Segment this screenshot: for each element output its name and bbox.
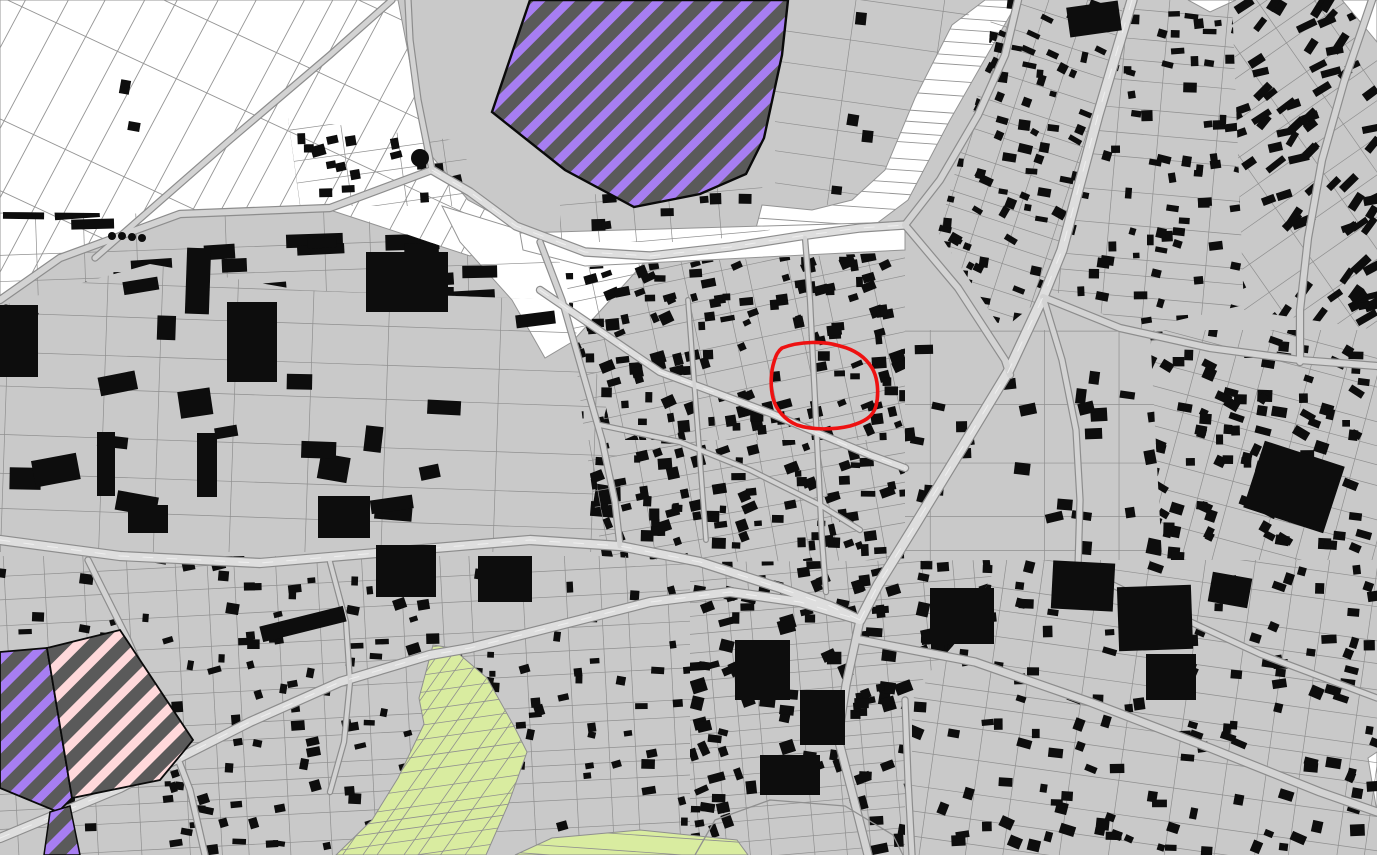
building	[861, 130, 873, 143]
building	[85, 823, 97, 831]
landmark-building	[478, 556, 532, 602]
building	[704, 312, 715, 322]
building	[621, 400, 629, 408]
landmark-building	[128, 505, 168, 533]
building	[1125, 507, 1136, 519]
building	[1165, 845, 1177, 851]
building	[1278, 341, 1289, 352]
building	[937, 562, 949, 572]
building	[994, 718, 1003, 729]
building	[635, 703, 648, 709]
landmark-building	[376, 545, 436, 597]
building	[1230, 204, 1241, 212]
landmark-building	[1146, 654, 1196, 700]
building	[875, 335, 882, 345]
building	[634, 455, 640, 462]
building	[725, 414, 737, 427]
building	[420, 192, 429, 202]
building	[529, 712, 542, 718]
building	[861, 491, 875, 497]
building	[1299, 393, 1308, 403]
building	[553, 631, 561, 642]
building	[287, 374, 313, 390]
building	[462, 265, 497, 278]
building	[364, 720, 375, 726]
building	[1134, 291, 1148, 299]
landmark-building	[1051, 560, 1115, 611]
building	[566, 582, 573, 593]
building	[1203, 29, 1217, 35]
building	[307, 577, 315, 583]
building	[590, 658, 600, 664]
building	[856, 277, 863, 287]
building	[739, 297, 753, 306]
building	[851, 462, 861, 468]
building	[246, 631, 255, 640]
building	[1275, 668, 1286, 677]
building	[218, 654, 224, 663]
building	[233, 738, 243, 746]
building	[677, 420, 690, 433]
building	[1208, 241, 1223, 251]
building	[222, 258, 248, 273]
building	[757, 425, 767, 435]
building	[797, 477, 807, 486]
building	[1133, 697, 1146, 710]
building	[1230, 670, 1242, 680]
building	[827, 652, 842, 665]
building	[641, 759, 655, 769]
building	[956, 421, 967, 432]
building	[915, 345, 934, 355]
building	[1256, 405, 1267, 416]
building	[708, 417, 715, 426]
building	[982, 822, 992, 832]
building	[601, 221, 611, 230]
building	[854, 698, 869, 708]
building	[18, 629, 32, 635]
building	[654, 275, 665, 282]
building	[1351, 787, 1363, 799]
building	[157, 315, 176, 340]
building	[1014, 462, 1031, 476]
building	[566, 273, 574, 279]
landmark-building	[735, 640, 790, 700]
building	[230, 801, 242, 808]
building	[885, 386, 898, 395]
building	[681, 817, 688, 825]
building	[797, 567, 810, 578]
building	[1106, 832, 1122, 840]
cadastral-map-canvas[interactable]	[0, 0, 1377, 855]
landmark-building	[97, 432, 115, 496]
building	[1018, 599, 1033, 609]
building	[1043, 626, 1053, 638]
building	[1024, 204, 1032, 212]
building	[601, 504, 609, 510]
building	[1348, 429, 1358, 441]
building	[1147, 791, 1158, 803]
building	[489, 671, 495, 677]
building	[874, 547, 887, 554]
building	[587, 722, 596, 732]
building	[781, 708, 790, 715]
building	[370, 653, 383, 660]
building	[583, 772, 591, 779]
building	[700, 196, 709, 204]
building	[1216, 434, 1223, 444]
building	[645, 392, 652, 403]
building	[1196, 501, 1208, 510]
building	[351, 576, 358, 585]
building	[247, 639, 259, 649]
building	[1306, 648, 1316, 656]
building	[691, 806, 700, 813]
building	[1199, 413, 1212, 424]
building	[732, 542, 741, 549]
landmark-building	[318, 496, 370, 538]
building	[754, 520, 762, 526]
building	[1342, 420, 1350, 427]
landmark-building	[1117, 585, 1193, 652]
landmark-building	[930, 588, 994, 644]
building	[638, 419, 647, 426]
building	[586, 353, 595, 362]
building	[1203, 120, 1212, 128]
building	[712, 538, 726, 549]
building	[649, 508, 659, 520]
building	[1333, 531, 1346, 541]
building	[1147, 235, 1154, 246]
building	[350, 169, 361, 180]
building	[731, 473, 745, 480]
building	[1015, 582, 1024, 590]
building	[32, 612, 44, 622]
building	[861, 544, 869, 556]
building	[1173, 357, 1185, 366]
building	[1051, 799, 1063, 806]
building	[1105, 629, 1115, 636]
building	[297, 133, 305, 144]
landmark-building	[197, 433, 217, 497]
building	[1365, 726, 1373, 735]
building	[487, 652, 494, 658]
building	[872, 606, 889, 614]
building	[914, 702, 927, 713]
building	[344, 786, 355, 796]
tank-circle	[118, 232, 126, 240]
building	[1171, 48, 1185, 55]
building	[921, 631, 931, 645]
building	[1171, 30, 1180, 38]
building	[723, 293, 731, 300]
landmark-building	[0, 305, 38, 377]
building	[745, 780, 757, 794]
building	[740, 603, 754, 611]
building	[1075, 388, 1087, 404]
building	[218, 570, 229, 581]
building	[1047, 124, 1059, 132]
building	[573, 668, 582, 677]
building	[673, 699, 683, 707]
building	[1183, 82, 1197, 92]
building	[1350, 824, 1365, 836]
building	[1141, 110, 1152, 121]
building	[1027, 667, 1039, 675]
building	[981, 719, 994, 726]
tank-circle	[138, 234, 146, 242]
tank-circle	[128, 233, 136, 241]
building	[808, 540, 815, 550]
building	[319, 188, 332, 197]
building	[417, 599, 430, 611]
building	[516, 722, 526, 729]
building	[323, 842, 332, 850]
building	[1040, 784, 1048, 793]
building	[1168, 11, 1180, 17]
building	[1196, 164, 1204, 175]
landmark-building	[227, 302, 277, 382]
landmark-building	[800, 690, 845, 745]
building	[1077, 286, 1084, 296]
building	[1222, 455, 1233, 464]
building	[616, 676, 626, 686]
building	[1214, 603, 1223, 611]
building	[1039, 142, 1050, 153]
building	[645, 295, 656, 302]
building	[605, 318, 620, 331]
building	[363, 425, 383, 453]
building	[699, 661, 711, 671]
building	[1201, 846, 1213, 855]
building	[1279, 843, 1289, 851]
building	[661, 208, 674, 216]
building	[301, 441, 336, 459]
tank-circle	[108, 232, 116, 240]
building	[732, 612, 739, 623]
building	[846, 114, 859, 127]
building	[1324, 540, 1338, 550]
building	[308, 237, 337, 249]
building	[739, 194, 752, 204]
building	[366, 586, 373, 595]
building	[350, 643, 363, 649]
building	[669, 641, 676, 649]
building	[1233, 794, 1244, 806]
building	[1191, 56, 1199, 66]
building	[869, 816, 883, 825]
building	[1124, 66, 1132, 74]
building	[1366, 781, 1377, 792]
building	[1172, 227, 1185, 236]
building	[426, 633, 439, 644]
building	[1025, 168, 1037, 175]
building	[920, 561, 932, 569]
building	[1097, 257, 1111, 268]
building	[882, 377, 891, 386]
landmark-building	[185, 248, 211, 315]
building	[1181, 754, 1195, 762]
building	[839, 476, 850, 485]
building	[1223, 723, 1232, 734]
building	[1224, 123, 1238, 132]
building	[826, 325, 842, 337]
building	[1048, 748, 1063, 759]
building	[427, 400, 461, 416]
building	[1181, 155, 1192, 167]
building	[1193, 18, 1204, 29]
building	[712, 794, 726, 803]
building	[834, 370, 845, 376]
building	[1184, 350, 1193, 361]
building	[1225, 55, 1234, 64]
building	[879, 304, 888, 316]
building	[1315, 583, 1324, 594]
building	[530, 697, 540, 708]
building	[163, 795, 174, 803]
building	[1220, 115, 1227, 124]
building	[850, 373, 860, 379]
building	[630, 590, 640, 600]
building	[1214, 20, 1222, 27]
building	[250, 583, 262, 590]
building	[797, 537, 806, 547]
building	[345, 135, 357, 146]
building	[692, 511, 701, 520]
building	[689, 269, 702, 278]
building	[707, 734, 721, 743]
building	[142, 614, 149, 623]
building	[1349, 512, 1362, 521]
building	[1194, 276, 1204, 285]
building	[998, 777, 1012, 787]
building	[71, 219, 114, 230]
building	[831, 186, 842, 195]
building	[1364, 640, 1375, 650]
building	[177, 387, 213, 418]
building	[225, 602, 239, 615]
building	[703, 350, 714, 360]
building	[1032, 729, 1040, 738]
building	[698, 322, 705, 331]
building	[795, 470, 802, 477]
building	[1125, 187, 1132, 198]
building	[601, 387, 612, 397]
building	[289, 590, 297, 600]
building	[871, 357, 886, 369]
building	[232, 838, 246, 844]
building	[1367, 590, 1377, 602]
building	[864, 530, 877, 541]
building	[746, 488, 757, 497]
building	[983, 565, 993, 573]
landmark-building	[760, 755, 820, 795]
building	[1088, 371, 1100, 385]
building	[818, 351, 830, 361]
building	[876, 683, 885, 691]
building	[1127, 91, 1135, 99]
building	[266, 840, 279, 848]
building	[175, 781, 185, 790]
building	[1089, 269, 1099, 279]
building	[375, 639, 389, 645]
building	[1357, 378, 1369, 386]
building	[1231, 425, 1240, 435]
building	[1133, 253, 1140, 259]
building	[1057, 498, 1073, 510]
building	[805, 614, 815, 622]
building	[1108, 241, 1116, 251]
building	[1179, 217, 1190, 224]
building	[1210, 160, 1222, 170]
building	[1018, 119, 1031, 131]
building	[1198, 197, 1212, 206]
building	[1110, 764, 1125, 774]
building	[776, 294, 789, 306]
map-viewport[interactable]	[0, 0, 1377, 855]
building	[291, 720, 305, 731]
building	[720, 506, 727, 514]
building	[651, 667, 664, 675]
building	[1352, 565, 1361, 575]
building	[1186, 458, 1195, 466]
building	[624, 730, 633, 737]
building	[1061, 791, 1073, 801]
building	[1347, 608, 1359, 617]
building	[855, 12, 867, 26]
building	[1168, 172, 1177, 183]
building	[1321, 634, 1337, 643]
building	[1085, 428, 1103, 440]
building	[342, 185, 355, 193]
landmark-building	[366, 252, 448, 312]
tank-circle	[411, 149, 429, 167]
building	[1111, 145, 1120, 153]
building	[710, 193, 722, 204]
building	[225, 763, 234, 773]
building	[943, 218, 952, 229]
building	[772, 515, 784, 523]
